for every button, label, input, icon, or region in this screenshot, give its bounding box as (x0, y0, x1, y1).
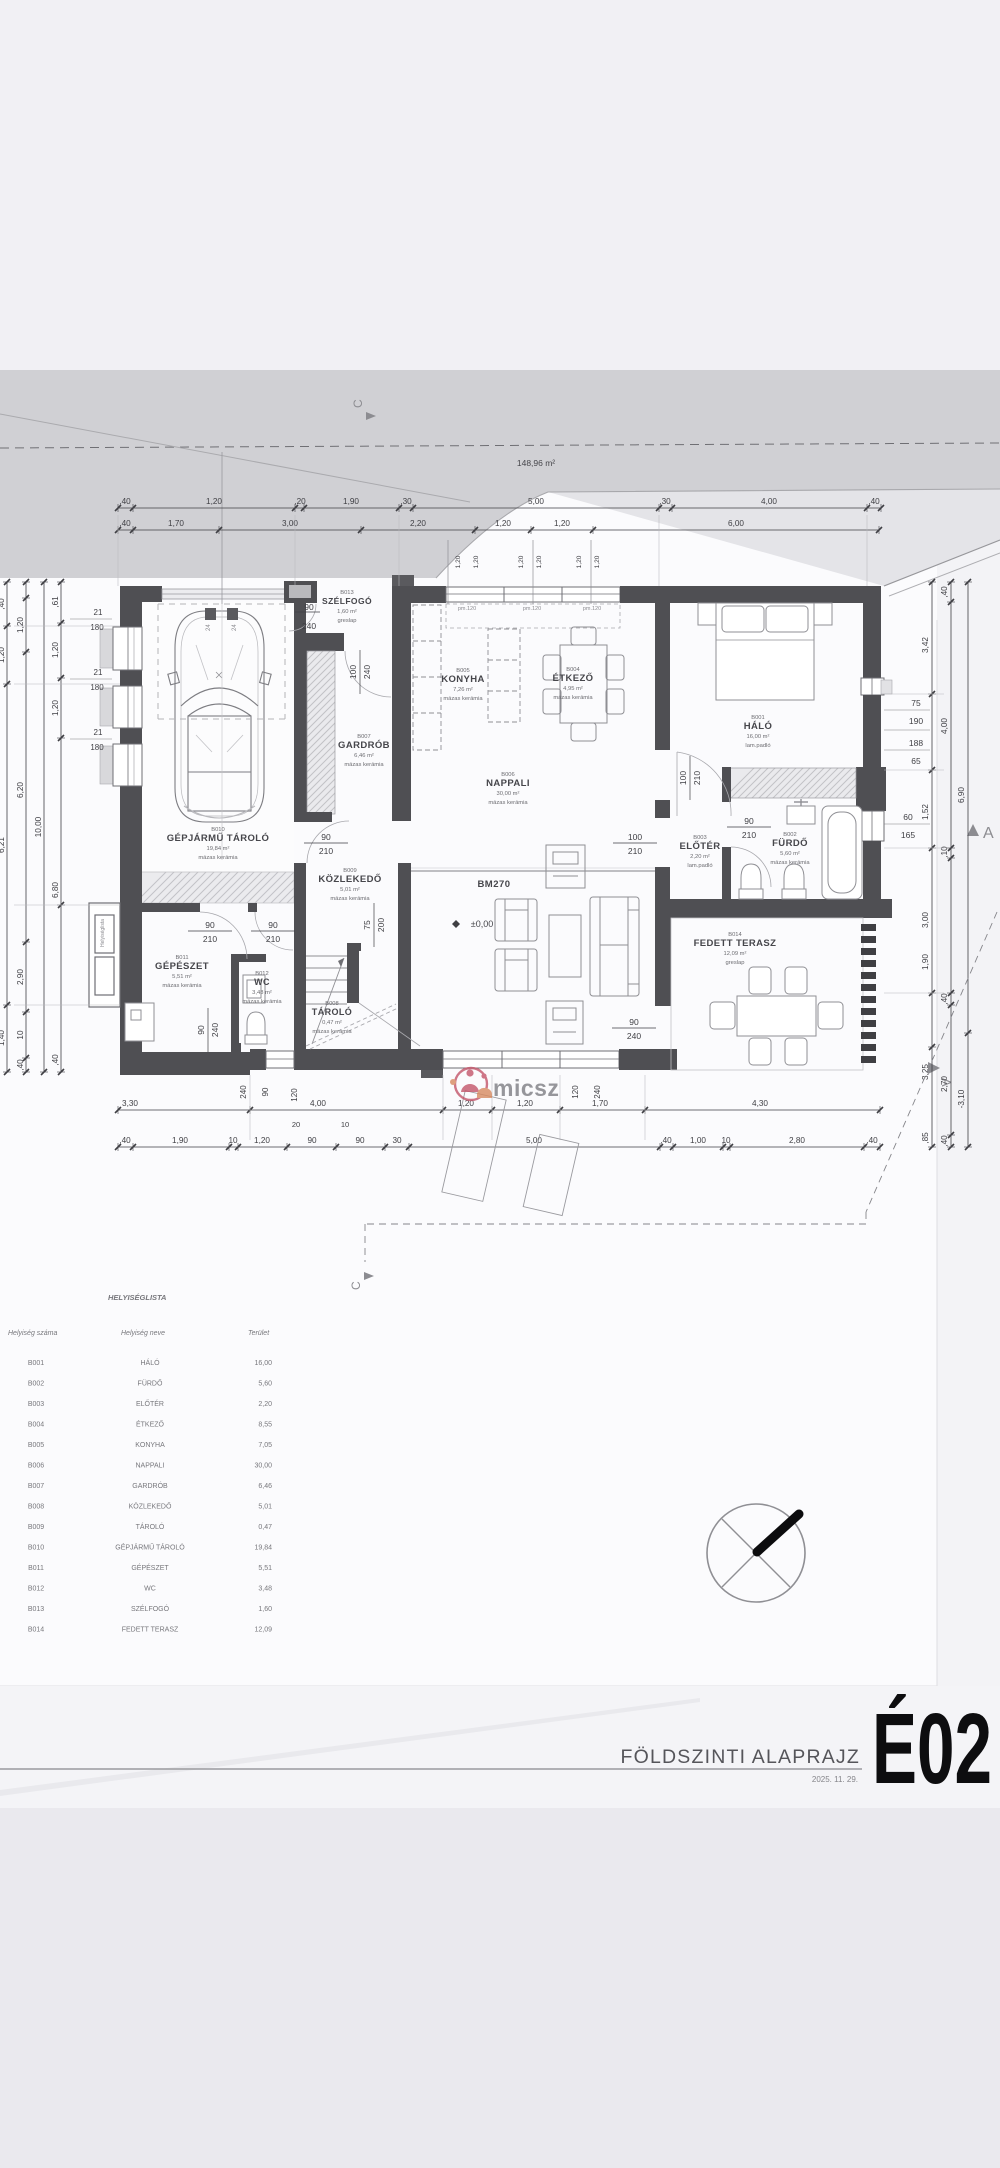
svg-text:90: 90 (304, 602, 314, 612)
svg-text:180: 180 (90, 743, 104, 752)
svg-text:C: C (351, 399, 365, 408)
svg-text:É02: É02 (872, 1693, 992, 1805)
svg-text:B001: B001 (28, 1360, 44, 1367)
svg-text:GÉPÉSZET: GÉPÉSZET (155, 961, 209, 972)
svg-text:,40: ,40 (868, 497, 880, 506)
svg-text:B009: B009 (28, 1524, 44, 1531)
svg-text:0,47: 0,47 (258, 1524, 272, 1531)
svg-text:3,00: 3,00 (921, 912, 930, 928)
svg-text:4,30: 4,30 (752, 1099, 768, 1108)
svg-text:190: 190 (909, 716, 923, 726)
svg-text:,40: ,40 (51, 1054, 60, 1066)
svg-text:3,00: 3,00 (282, 519, 298, 528)
svg-text:B012: B012 (28, 1586, 44, 1593)
svg-text:210: 210 (266, 934, 280, 944)
svg-text:24: 24 (206, 624, 212, 631)
svg-text:16,00: 16,00 (254, 1360, 272, 1367)
svg-text:3,25: 3,25 (921, 1064, 930, 1080)
svg-text:210: 210 (319, 846, 333, 856)
svg-text:±0,00: ±0,00 (471, 919, 493, 929)
svg-text:,61: ,61 (51, 596, 60, 608)
svg-text:6,90: 6,90 (957, 787, 966, 803)
svg-text:30: 30 (392, 1136, 402, 1145)
svg-text:240: 240 (239, 1085, 248, 1099)
svg-text:C: C (349, 1281, 363, 1290)
svg-text:,40: ,40 (866, 1136, 878, 1145)
svg-text:1,20: 1,20 (206, 497, 222, 506)
svg-text:1,20: 1,20 (518, 555, 525, 568)
svg-text:B006: B006 (28, 1463, 44, 1470)
svg-text:2,90: 2,90 (16, 969, 25, 985)
svg-text:1,20: 1,20 (455, 555, 462, 568)
svg-text:100: 100 (678, 771, 688, 785)
svg-text:200: 200 (376, 918, 386, 932)
svg-text:240: 240 (210, 1023, 220, 1037)
svg-text:1,52: 1,52 (921, 804, 930, 820)
svg-text:90: 90 (355, 1136, 365, 1145)
svg-text:TÁROLÓ: TÁROLÓ (312, 1006, 352, 1017)
svg-text:ÉTKEZŐ: ÉTKEZŐ (553, 672, 594, 684)
svg-text:B008: B008 (28, 1504, 44, 1511)
svg-text:6,80: 6,80 (51, 882, 60, 898)
svg-text:FEDETT TERASZ: FEDETT TERASZ (122, 1627, 179, 1634)
svg-text:5,60: 5,60 (258, 1381, 272, 1388)
svg-text:1,90: 1,90 (921, 954, 930, 970)
svg-text:lam.padló: lam.padló (687, 863, 712, 869)
svg-text:90: 90 (629, 1017, 639, 1027)
svg-text:30,00 m²: 30,00 m² (497, 791, 520, 797)
svg-text:GARDRÓB: GARDRÓB (338, 739, 390, 751)
svg-text:7,26 m²: 7,26 m² (453, 687, 473, 693)
svg-text:10: 10 (16, 1030, 25, 1040)
svg-text:90: 90 (261, 1087, 270, 1096)
svg-text:NAPPALI: NAPPALI (486, 778, 530, 789)
svg-text:pm.120: pm.120 (523, 606, 541, 612)
svg-text:GÉPJÁRMŰ TÁROLÓ: GÉPJÁRMŰ TÁROLÓ (167, 832, 270, 844)
svg-text:2,20 m²: 2,20 m² (690, 854, 710, 860)
svg-text:10: 10 (341, 1120, 349, 1129)
svg-text:4,00: 4,00 (761, 497, 777, 506)
svg-text:B003: B003 (28, 1401, 44, 1408)
svg-text:5,01 m²: 5,01 m² (340, 887, 360, 893)
svg-text:1,90: 1,90 (172, 1136, 188, 1145)
svg-text:165: 165 (901, 830, 915, 840)
svg-text:SZÉLFOGÓ: SZÉLFOGÓ (131, 1604, 170, 1613)
svg-text:1,90: 1,90 (343, 497, 359, 506)
svg-text:,30: ,30 (659, 497, 671, 506)
svg-text:120: 120 (571, 1085, 580, 1099)
svg-text:180: 180 (90, 623, 104, 632)
svg-text:,30: ,30 (400, 497, 412, 506)
svg-text:1,20: 1,20 (554, 519, 570, 528)
svg-text:240: 240 (362, 665, 372, 679)
svg-text:KÖZLEKEDŐ: KÖZLEKEDŐ (318, 873, 381, 885)
svg-text:90: 90 (307, 1136, 317, 1145)
svg-text:BM270: BM270 (477, 879, 510, 890)
svg-text:HÁLÓ: HÁLÓ (744, 720, 773, 732)
svg-text:-3,10: -3,10 (957, 1089, 966, 1108)
svg-text:2025. 11. 29.: 2025. 11. 29. (812, 1775, 858, 1784)
svg-text:HÁLÓ: HÁLÓ (140, 1358, 160, 1367)
svg-text:,85: ,85 (921, 1132, 930, 1144)
svg-text:3,48 m²: 3,48 m² (252, 990, 272, 996)
svg-text:WC: WC (254, 977, 270, 987)
svg-text:10: 10 (228, 1136, 238, 1145)
svg-text:6,46 m²: 6,46 m² (354, 753, 374, 759)
svg-text:6,21: 6,21 (0, 837, 6, 853)
svg-text:mázas kerámia: mázas kerámia (770, 860, 810, 866)
svg-text:5,60 m²: 5,60 m² (780, 851, 800, 857)
svg-text:4,00: 4,00 (310, 1099, 326, 1108)
svg-text:B005: B005 (28, 1442, 44, 1449)
svg-text:1,20: 1,20 (576, 555, 583, 568)
svg-text:1,00: 1,00 (690, 1136, 706, 1145)
svg-text:210: 210 (742, 830, 756, 840)
svg-text:TÁROLÓ: TÁROLÓ (136, 1522, 165, 1531)
svg-text:FÜRDŐ: FÜRDŐ (772, 837, 808, 849)
svg-text:8,55: 8,55 (258, 1422, 272, 1429)
svg-text:148,96 m²: 148,96 m² (517, 458, 555, 468)
svg-text:,40: ,40 (119, 1136, 131, 1145)
svg-text:pm.120: pm.120 (458, 606, 476, 612)
svg-text:0,47 m²: 0,47 m² (322, 1020, 342, 1026)
svg-text:mázas kerámia: mázas kerámia (242, 999, 282, 1005)
svg-text:1,20: 1,20 (495, 519, 511, 528)
svg-text:mázas kerámia: mázas kerámia (344, 762, 384, 768)
svg-text:100: 100 (628, 832, 642, 842)
svg-text:60: 60 (903, 812, 913, 822)
svg-text:10,00: 10,00 (34, 816, 43, 837)
svg-text:,40: ,40 (119, 497, 131, 506)
svg-text:,40: ,40 (940, 586, 949, 598)
svg-text:75: 75 (362, 920, 372, 930)
svg-text:21: 21 (94, 728, 103, 737)
svg-text:KONYHA: KONYHA (135, 1442, 165, 1449)
svg-text:mázas kerámia: mázas kerámia (488, 800, 528, 806)
svg-text:1,20: 1,20 (473, 555, 480, 568)
svg-text:12,09 m²: 12,09 m² (724, 951, 747, 957)
svg-text:NAPPALI: NAPPALI (135, 1463, 164, 1470)
svg-text:21: 21 (94, 668, 103, 677)
svg-text:210: 210 (628, 846, 642, 856)
svg-text:,40: ,40 (119, 519, 131, 528)
svg-text:1,20: 1,20 (594, 555, 601, 568)
svg-text:KÖZLEKEDŐ: KÖZLEKEDŐ (129, 1502, 172, 1511)
svg-text:90: 90 (268, 920, 278, 930)
svg-text:20: 20 (292, 1120, 300, 1129)
svg-text:120: 120 (290, 1088, 299, 1102)
svg-text:GÉPÉSZET: GÉPÉSZET (131, 1563, 169, 1572)
svg-text:KONYHA: KONYHA (441, 674, 485, 685)
svg-text:6,00: 6,00 (728, 519, 744, 528)
svg-text:24: 24 (232, 624, 238, 631)
svg-text:ÉTKEZŐ: ÉTKEZŐ (136, 1420, 165, 1429)
svg-text:4,95 m²: 4,95 m² (563, 686, 583, 692)
svg-text:lam.padló: lam.padló (745, 743, 770, 749)
svg-text:Helyiséglista: Helyiséglista (100, 919, 106, 947)
svg-text:1,40: 1,40 (0, 1030, 6, 1046)
svg-text:,20: ,20 (294, 497, 306, 506)
svg-text:7,05: 7,05 (258, 1442, 272, 1449)
svg-text:mázas kerámia: mázas kerámia (198, 855, 238, 861)
svg-text:240: 240 (627, 1031, 641, 1041)
svg-text:B011: B011 (28, 1565, 44, 1572)
svg-text:10: 10 (721, 1136, 731, 1145)
svg-text:HELYISÉGLISTA: HELYISÉGLISTA (108, 1293, 166, 1302)
svg-text:mázas kerámia: mázas kerámia (330, 896, 370, 902)
svg-text:210: 210 (692, 771, 702, 785)
svg-text:greslap: greslap (725, 960, 744, 966)
svg-text:19,84 m²: 19,84 m² (207, 846, 230, 852)
svg-text:75: 75 (911, 698, 921, 708)
svg-text:ELŐTÉR: ELŐTÉR (136, 1399, 164, 1408)
svg-text:1,70: 1,70 (592, 1099, 608, 1108)
svg-text:B004: B004 (28, 1422, 44, 1429)
svg-text:pm.120: pm.120 (583, 606, 601, 612)
svg-text:,40: ,40 (940, 1135, 949, 1147)
svg-text:B010: B010 (28, 1545, 44, 1552)
svg-text:greslap: greslap (337, 618, 356, 624)
svg-text:FEDETT TERASZ: FEDETT TERASZ (694, 938, 777, 949)
svg-text:1,20: 1,20 (0, 647, 6, 663)
svg-text:5,51: 5,51 (258, 1565, 272, 1572)
svg-text:Helyiség neve: Helyiség neve (121, 1330, 165, 1337)
svg-text:5,51 m²: 5,51 m² (172, 974, 192, 980)
svg-text:240: 240 (593, 1085, 602, 1099)
svg-text:1,20: 1,20 (51, 642, 60, 658)
svg-text:4,00: 4,00 (940, 718, 949, 734)
svg-text:12,09: 12,09 (254, 1627, 272, 1634)
svg-text:2,20: 2,20 (410, 519, 426, 528)
svg-text:5,00: 5,00 (528, 497, 544, 506)
svg-text:100: 100 (348, 665, 358, 679)
svg-text:30,00: 30,00 (254, 1463, 272, 1470)
svg-text:21: 21 (94, 608, 103, 617)
svg-text:B013: B013 (28, 1606, 44, 1613)
svg-text:6,46: 6,46 (258, 1483, 272, 1490)
svg-text:1,20: 1,20 (254, 1136, 270, 1145)
svg-text:B007: B007 (28, 1483, 44, 1490)
svg-text:65: 65 (911, 756, 921, 766)
svg-text:GÉPJÁRMŰ TÁROLÓ: GÉPJÁRMŰ TÁROLÓ (115, 1543, 185, 1552)
svg-text:16,00 m²: 16,00 m² (747, 734, 770, 740)
svg-text:,10: ,10 (940, 846, 949, 858)
svg-text:2,80: 2,80 (789, 1136, 805, 1145)
svg-text:1,70: 1,70 (168, 519, 184, 528)
svg-text:5,00: 5,00 (526, 1136, 542, 1145)
svg-text:2,20: 2,20 (258, 1401, 272, 1408)
svg-text:FÖLDSZINTI ALAPRAJZ: FÖLDSZINTI ALAPRAJZ (620, 1746, 860, 1768)
svg-text:B002: B002 (28, 1381, 44, 1388)
svg-text:1,60: 1,60 (258, 1606, 272, 1613)
svg-text:1,60 m²: 1,60 m² (337, 609, 357, 615)
svg-text:mázas kerámia: mázas kerámia (312, 1029, 352, 1035)
svg-text:90: 90 (744, 816, 754, 826)
svg-text:micsz: micsz (493, 1075, 559, 1101)
svg-text:,40: ,40 (660, 1136, 672, 1145)
svg-text:ELŐTÉR: ELŐTÉR (680, 840, 721, 852)
svg-text:WC: WC (144, 1586, 156, 1593)
svg-text:90: 90 (205, 920, 215, 930)
svg-text:FÜRDŐ: FÜRDŐ (138, 1379, 163, 1388)
svg-text:B014: B014 (28, 1627, 44, 1634)
svg-text:1,20: 1,20 (16, 617, 25, 633)
svg-text:SZÉLFOGÓ: SZÉLFOGÓ (322, 595, 372, 606)
svg-text:5,01: 5,01 (258, 1504, 272, 1511)
svg-text:3,42: 3,42 (921, 637, 930, 653)
svg-text:mázas kerámia: mázas kerámia (162, 983, 202, 989)
svg-text:210: 210 (203, 934, 217, 944)
svg-text:3,48: 3,48 (258, 1586, 272, 1593)
svg-text:1,20: 1,20 (51, 700, 60, 716)
svg-text:mázas kerámia: mázas kerámia (553, 695, 593, 701)
svg-text:2,70: 2,70 (940, 1076, 949, 1092)
svg-text:90: 90 (321, 832, 331, 842)
svg-text:,40: ,40 (16, 1059, 25, 1071)
svg-text:90: 90 (196, 1025, 206, 1035)
svg-text:Terület: Terület (248, 1330, 270, 1337)
svg-text:240: 240 (302, 621, 316, 631)
svg-text:3,30: 3,30 (122, 1099, 138, 1108)
svg-text:188: 188 (909, 738, 923, 748)
svg-text:Helyiség száma: Helyiség száma (8, 1330, 58, 1337)
svg-text:180: 180 (90, 683, 104, 692)
svg-text:A: A (983, 825, 994, 842)
svg-text:1,20: 1,20 (536, 555, 543, 568)
svg-text:6,20: 6,20 (16, 782, 25, 798)
svg-text:,40: ,40 (940, 993, 949, 1005)
svg-text:GARDRÓB: GARDRÓB (132, 1481, 168, 1490)
svg-text:19,84: 19,84 (254, 1545, 272, 1552)
svg-text:mázas kerámia: mázas kerámia (443, 696, 483, 702)
svg-text:,40: ,40 (0, 598, 6, 610)
